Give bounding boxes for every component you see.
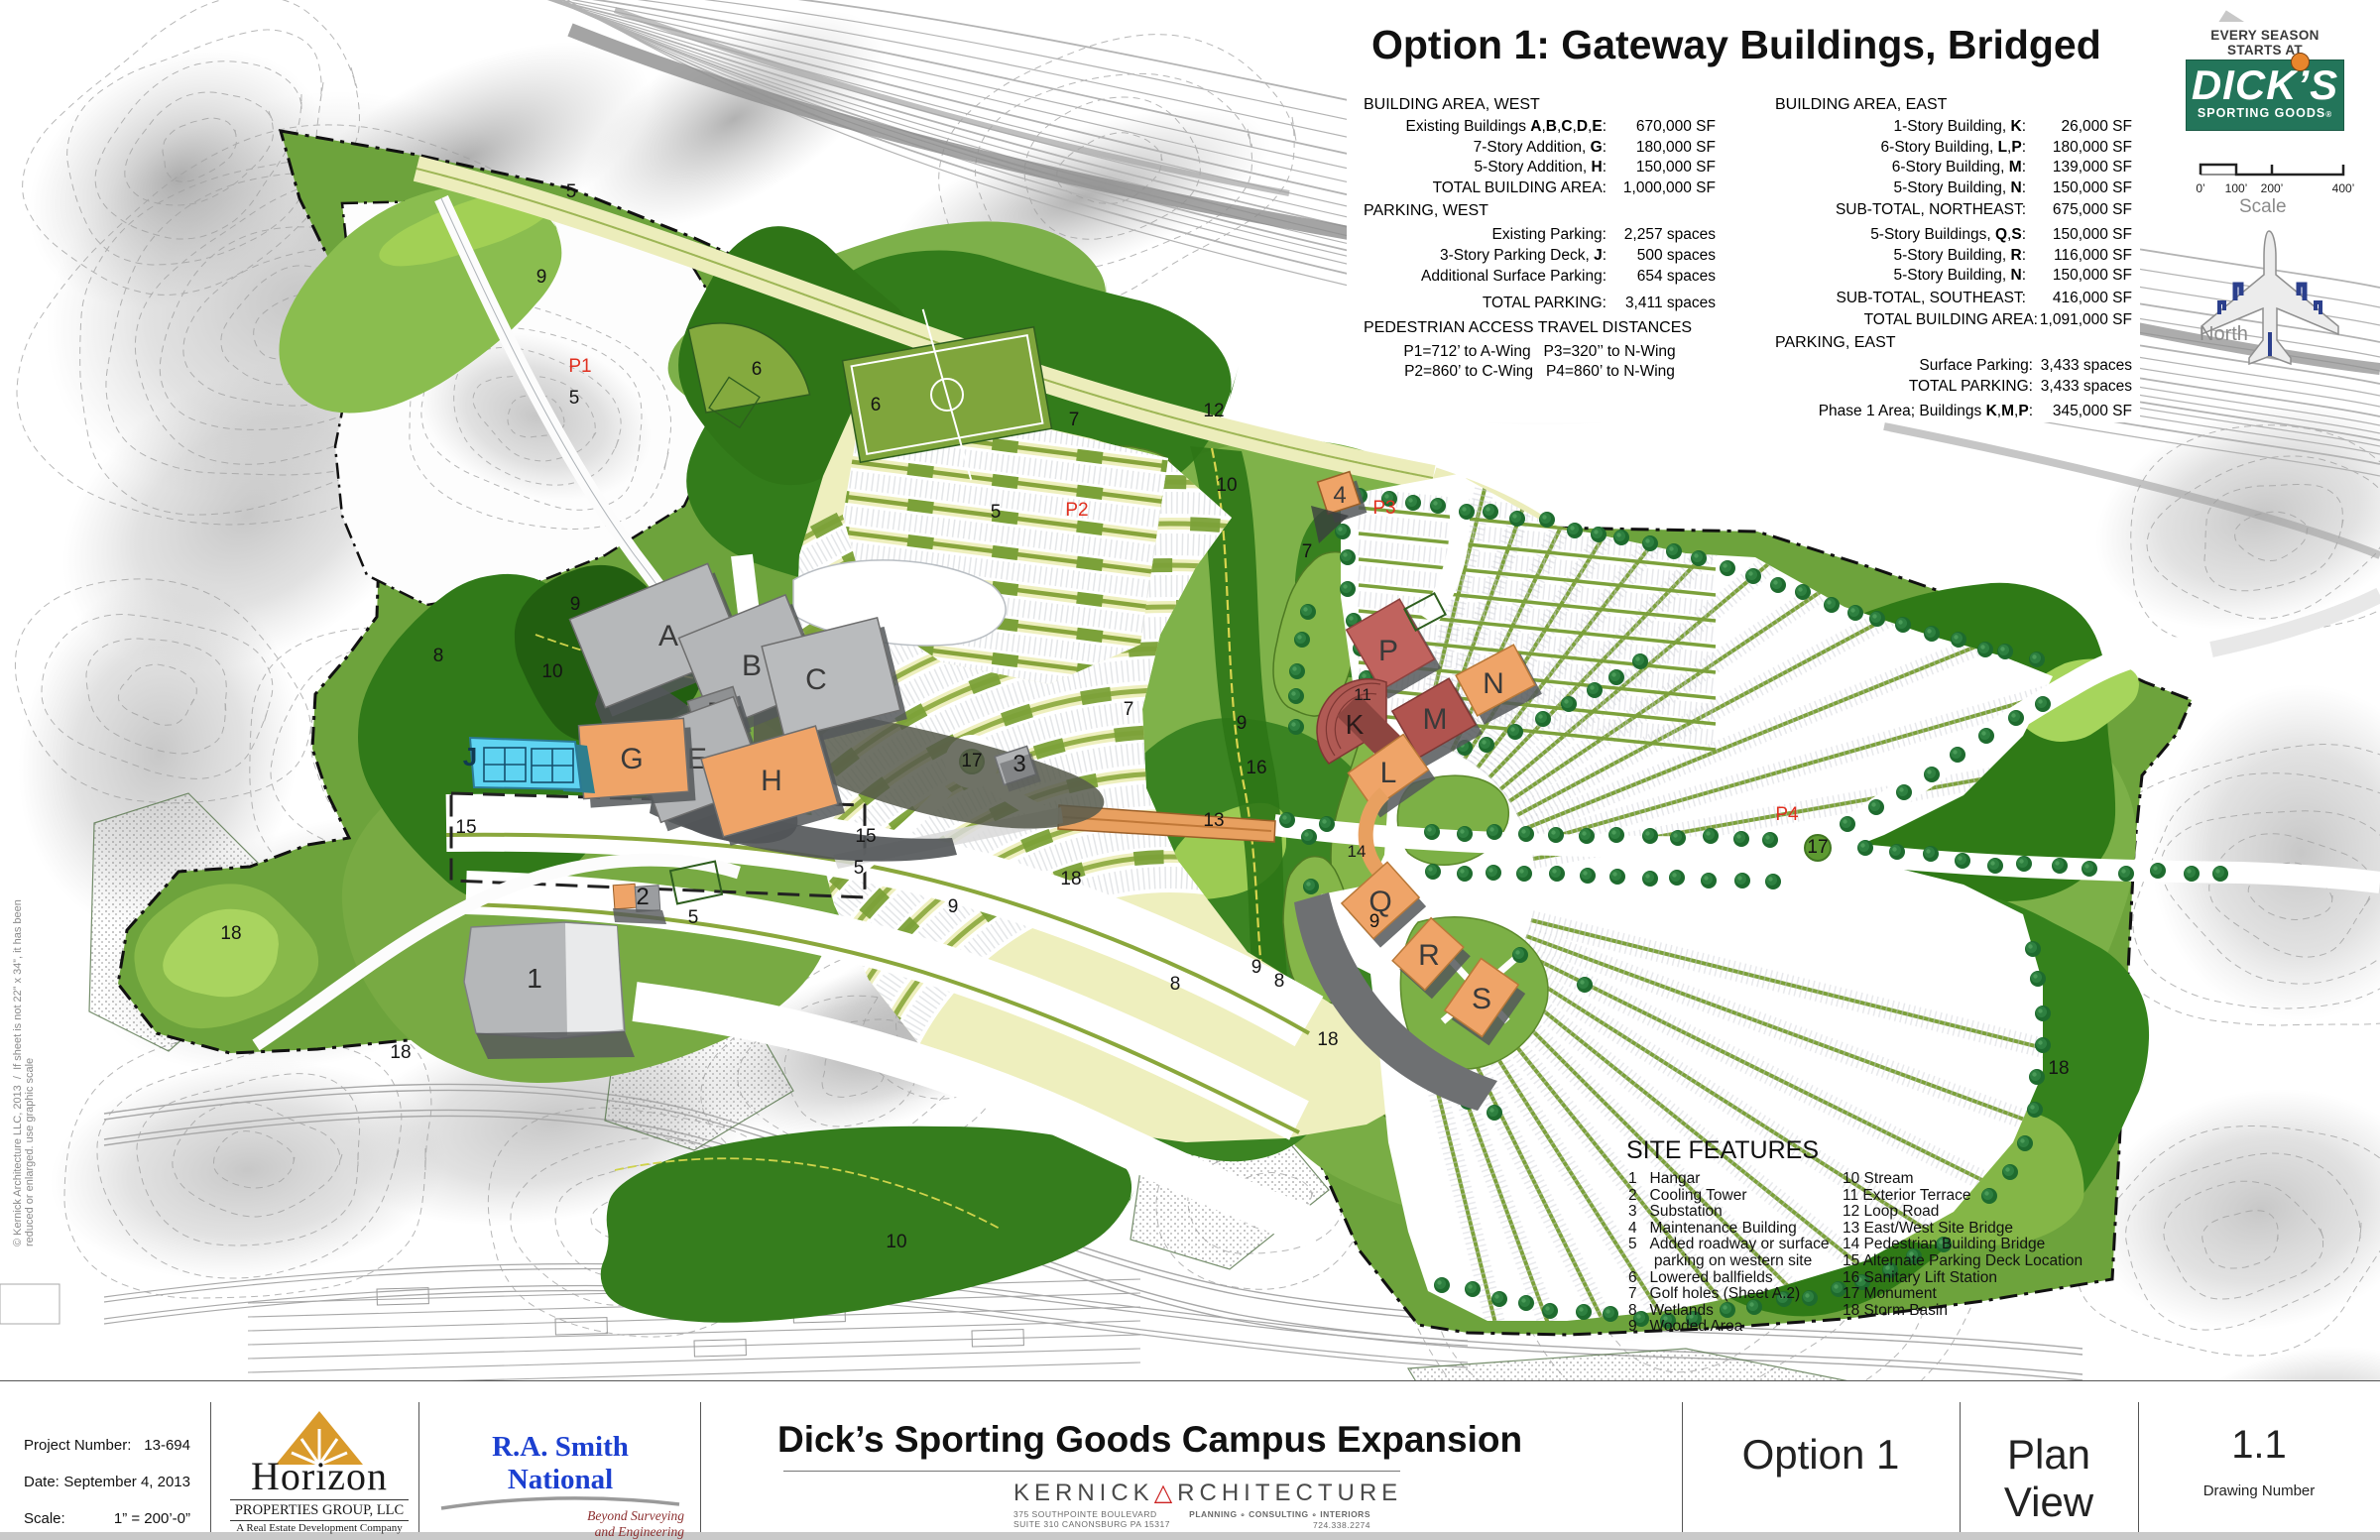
svg-text:200’: 200’ <box>2261 181 2284 195</box>
svg-text:M: M <box>1423 703 1448 736</box>
svg-text:5: 5 <box>566 181 577 202</box>
svg-text:C: C <box>805 663 827 696</box>
svg-text:2: 2 <box>636 884 649 910</box>
svg-text:H: H <box>761 765 782 797</box>
svg-text:3: 3 <box>1012 751 1025 777</box>
svg-text:18: 18 <box>390 1042 411 1063</box>
svg-text:17: 17 <box>961 751 982 771</box>
svg-text:9: 9 <box>1369 911 1380 932</box>
svg-text:1: 1 <box>527 963 542 994</box>
svg-text:400’: 400’ <box>2332 181 2355 195</box>
svg-text:9: 9 <box>570 594 581 615</box>
svg-text:P: P <box>1378 635 1398 667</box>
svg-text:P3: P3 <box>1372 498 1395 519</box>
svg-text:5: 5 <box>991 502 1002 523</box>
svg-text:5: 5 <box>854 858 865 879</box>
svg-text:18: 18 <box>2048 1058 2069 1079</box>
svg-text:8: 8 <box>1170 974 1181 995</box>
svg-text:12: 12 <box>1203 401 1224 421</box>
svg-text:14: 14 <box>1348 842 1367 861</box>
svg-text:17: 17 <box>1807 837 1828 858</box>
svg-text:15: 15 <box>855 826 876 847</box>
svg-text:5: 5 <box>569 388 580 409</box>
svg-text:R: R <box>1418 939 1440 972</box>
svg-text:100’: 100’ <box>2225 181 2248 195</box>
svg-text:9: 9 <box>536 267 547 288</box>
svg-text:4: 4 <box>1333 482 1346 509</box>
svg-text:J: J <box>463 742 477 771</box>
svg-text:Scale: Scale <box>2239 196 2287 216</box>
svg-text:P2: P2 <box>1065 500 1088 521</box>
svg-text:0’: 0’ <box>2196 181 2204 195</box>
svg-text:K: K <box>1346 709 1365 740</box>
svg-text:7: 7 <box>1124 699 1134 720</box>
svg-text:10: 10 <box>541 661 562 682</box>
svg-text:10: 10 <box>886 1232 906 1252</box>
svg-text:9: 9 <box>948 896 959 917</box>
svg-text:9: 9 <box>1251 957 1262 978</box>
svg-text:18: 18 <box>1060 869 1081 889</box>
svg-text:6: 6 <box>752 359 763 380</box>
svg-text:16: 16 <box>1246 758 1266 778</box>
svg-text:S: S <box>1472 983 1491 1015</box>
svg-text:P4: P4 <box>1775 804 1799 825</box>
svg-text:P1: P1 <box>568 356 591 377</box>
svg-text:9: 9 <box>1237 713 1248 734</box>
svg-text:8: 8 <box>433 646 444 666</box>
svg-text:7: 7 <box>1302 541 1313 562</box>
svg-text:10: 10 <box>1216 475 1237 496</box>
svg-text:11: 11 <box>1354 685 1371 704</box>
svg-text:G: G <box>620 743 643 775</box>
svg-text:13: 13 <box>1203 810 1224 831</box>
svg-text:6: 6 <box>871 395 882 415</box>
svg-text:L: L <box>1380 757 1397 789</box>
svg-text:A: A <box>658 620 678 652</box>
svg-text:B: B <box>742 650 762 682</box>
svg-text:18: 18 <box>1317 1029 1338 1050</box>
svg-text:15: 15 <box>455 817 476 838</box>
svg-text:8: 8 <box>1274 971 1285 992</box>
svg-text:18: 18 <box>220 923 241 944</box>
svg-text:7: 7 <box>1069 410 1080 430</box>
svg-text:5: 5 <box>688 907 699 928</box>
svg-text:North: North <box>2200 323 2248 345</box>
svg-text:N: N <box>1483 667 1504 700</box>
